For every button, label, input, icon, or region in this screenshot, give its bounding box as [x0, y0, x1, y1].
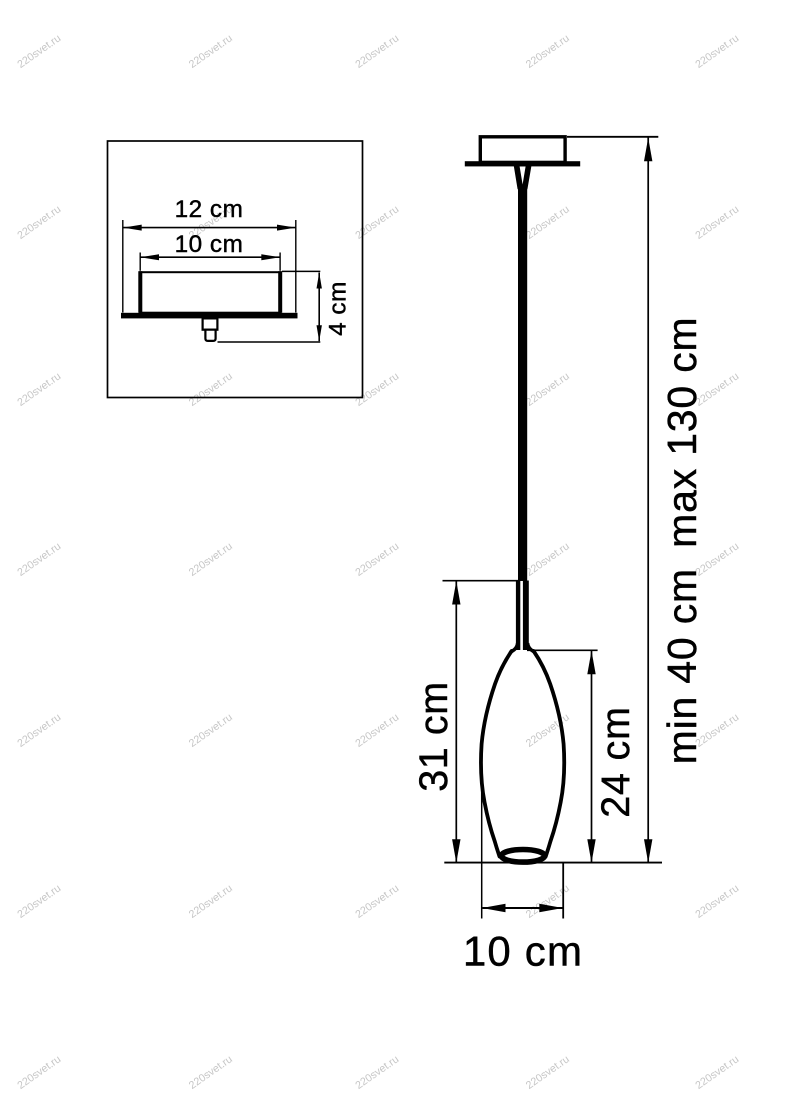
- svg-text:220svet.ru: 220svet.ru: [15, 370, 63, 408]
- svg-text:31 cm: 31 cm: [412, 681, 456, 792]
- svg-text:220svet.ru: 220svet.ru: [524, 370, 572, 408]
- svg-text:min 40 cm: min 40 cm: [659, 568, 705, 764]
- svg-text:220svet.ru: 220svet.ru: [187, 1053, 235, 1091]
- svg-text:24 cm: 24 cm: [594, 706, 638, 818]
- svg-text:220svet.ru: 220svet.ru: [693, 32, 741, 70]
- svg-text:220svet.ru: 220svet.ru: [353, 203, 401, 241]
- svg-text:10 cm: 10 cm: [463, 928, 583, 975]
- svg-text:220svet.ru: 220svet.ru: [693, 1053, 741, 1091]
- svg-text:220svet.ru: 220svet.ru: [524, 1053, 572, 1091]
- svg-text:220svet.ru: 220svet.ru: [15, 540, 63, 578]
- svg-text:220svet.ru: 220svet.ru: [524, 203, 572, 241]
- svg-text:220svet.ru: 220svet.ru: [187, 882, 235, 920]
- svg-text:220svet.ru: 220svet.ru: [524, 540, 572, 578]
- svg-text:220svet.ru: 220svet.ru: [693, 203, 741, 241]
- svg-text:220svet.ru: 220svet.ru: [187, 711, 235, 749]
- svg-text:220svet.ru: 220svet.ru: [187, 370, 235, 408]
- svg-text:220svet.ru: 220svet.ru: [353, 370, 401, 408]
- svg-text:220svet.ru: 220svet.ru: [15, 203, 63, 241]
- svg-text:220svet.ru: 220svet.ru: [353, 32, 401, 70]
- svg-text:220svet.ru: 220svet.ru: [353, 882, 401, 920]
- svg-text:10 cm: 10 cm: [175, 231, 244, 258]
- svg-text:220svet.ru: 220svet.ru: [353, 711, 401, 749]
- svg-text:220svet.ru: 220svet.ru: [15, 882, 63, 920]
- svg-text:220svet.ru: 220svet.ru: [693, 882, 741, 920]
- svg-text:220svet.ru: 220svet.ru: [15, 32, 63, 70]
- svg-text:12 cm: 12 cm: [175, 196, 244, 223]
- svg-text:220svet.ru: 220svet.ru: [15, 711, 63, 749]
- svg-text:220svet.ru: 220svet.ru: [524, 32, 572, 70]
- svg-text:220svet.ru: 220svet.ru: [187, 540, 235, 578]
- svg-text:220svet.ru: 220svet.ru: [353, 540, 401, 578]
- svg-text:220svet.ru: 220svet.ru: [15, 1053, 63, 1091]
- svg-text:4 cm: 4 cm: [325, 281, 352, 336]
- svg-text:220svet.ru: 220svet.ru: [524, 882, 572, 920]
- svg-text:220svet.ru: 220svet.ru: [187, 32, 235, 70]
- svg-text:max 130 cm: max 130 cm: [659, 317, 705, 548]
- svg-text:220svet.ru: 220svet.ru: [353, 1053, 401, 1091]
